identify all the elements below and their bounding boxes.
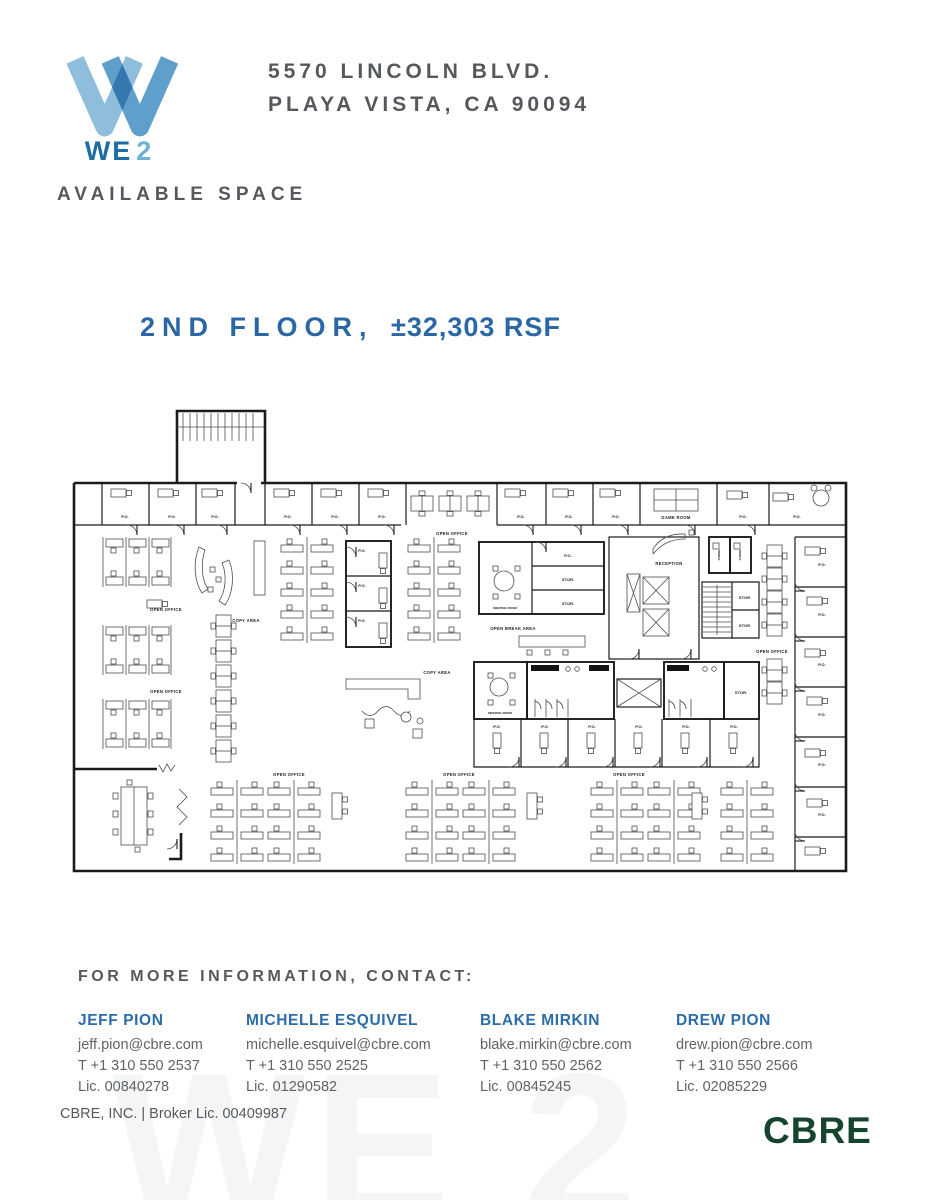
- room-label-po: P.O.: [358, 583, 366, 588]
- broker-phone: T +1 310 550 2566: [676, 1056, 812, 1077]
- we2-logo-w-icon: [58, 50, 180, 138]
- room-label-po: P.O.: [358, 618, 366, 623]
- broker-email[interactable]: michelle.esquivel@cbre.com: [246, 1035, 431, 1056]
- logo-two: 2: [136, 136, 153, 166]
- restrooms: MEETING ROOM STOR.: [474, 662, 759, 719]
- room-label-po: P.O.: [682, 724, 690, 729]
- room-label-po: P.O.: [331, 514, 339, 519]
- cbre-logo: CBRE: [763, 1110, 872, 1152]
- room-label-open-office: OPEN OFFICE: [150, 689, 182, 694]
- broker-phone: T +1 310 550 2537: [78, 1056, 203, 1077]
- floor-plan-svg: P.O. P.O. P.O. P.O. P.O. P.O. P.O. P.O. …: [69, 397, 861, 897]
- room-label-po: P.O.: [793, 514, 801, 519]
- broker-name: DREW PION: [676, 1012, 812, 1030]
- company-license-line: CBRE, INC. | Broker Lic. 00409987: [60, 1106, 287, 1122]
- room-label-open-office: OPEN OFFICE: [756, 649, 788, 654]
- mid-cubicles: P.O. P.O. P.O.: [281, 537, 460, 647]
- room-label-meeting-room: MEETING ROOM: [493, 606, 517, 610]
- room-label-po: P.O.: [818, 762, 826, 767]
- broker-name: JEFF PION: [78, 1012, 203, 1030]
- flyer-page: WE 2 WE2 5570 LINCOLN BLVD. PLAYA VISTA,…: [0, 0, 928, 1200]
- bottom-office-row: P.O. P.O. P.O. P.O. P.O. P.O.: [474, 719, 759, 767]
- room-label-phone: PHONE: [717, 550, 721, 561]
- room-label-po: P.O.: [818, 662, 826, 667]
- room-label-po: P.O.: [739, 514, 747, 519]
- logo-we: WE: [85, 136, 133, 166]
- broker-card-jeff-pion: JEFF PION jeff.pion@cbre.com T +1 310 55…: [78, 1012, 203, 1098]
- room-label-po: P.O.: [493, 724, 501, 729]
- contact-heading: FOR MORE INFORMATION, CONTACT:: [78, 968, 475, 986]
- room-label-open-office: OPEN OFFICE: [436, 531, 468, 536]
- room-label-po: P.O.: [612, 514, 620, 519]
- room-label-po: P.O.: [358, 548, 366, 553]
- room-label-game-room: GAME ROOM: [661, 515, 691, 520]
- room-label-meeting-room: MEETING ROOM: [488, 711, 512, 715]
- we2-logo-text: WE2: [58, 136, 180, 167]
- broker-email[interactable]: jeff.pion@cbre.com: [78, 1035, 203, 1056]
- room-label-po: P.O.: [818, 712, 826, 717]
- center-copy-area: COPY AREA: [346, 670, 451, 738]
- room-label-po: P.O.: [211, 514, 219, 519]
- broker-card-michelle-esquivel: MICHELLE ESQUIVEL michelle.esquivel@cbre…: [246, 1012, 431, 1098]
- broker-email[interactable]: blake.mirkin@cbre.com: [480, 1035, 632, 1056]
- room-label-stor: STOR.: [562, 601, 574, 606]
- room-label-po: P.O.: [730, 724, 738, 729]
- room-label-po: P.O.: [565, 514, 573, 519]
- room-label-stor: STOR.: [735, 690, 747, 695]
- floor-name: 2ND FLOOR,: [140, 312, 374, 342]
- broker-email[interactable]: drew.pion@cbre.com: [676, 1035, 812, 1056]
- floor-title: 2ND FLOOR, ±32,303 RSF: [140, 312, 561, 343]
- room-label-copy-area: COPY AREA: [232, 618, 259, 623]
- broker-phone: T +1 310 550 2525: [246, 1056, 431, 1077]
- top-office-row: P.O. P.O. P.O. P.O. P.O. P.O. P.O. P.O. …: [74, 483, 846, 536]
- room-label-reception: RECEPTION: [655, 561, 682, 566]
- broker-phone: T +1 310 550 2562: [480, 1056, 632, 1077]
- broker-license: Lic. 00840278: [78, 1077, 203, 1098]
- broker-name: MICHELLE ESQUIVEL: [246, 1012, 431, 1030]
- room-label-stor: STOR.: [739, 623, 751, 628]
- room-label-po: P.O.: [121, 514, 129, 519]
- broker-license: Lic. 00845245: [480, 1077, 632, 1098]
- room-label-open-office: OPEN OFFICE: [443, 772, 475, 777]
- bottom-open-office: OPEN OFFICE OPEN OFFICE OPEN OFFICE: [211, 772, 773, 864]
- room-label-open-office: OPEN OFFICE: [150, 607, 182, 612]
- room-label-open-break-area: OPEN BREAK AREA: [490, 626, 535, 631]
- broker-card-drew-pion: DREW PION drew.pion@cbre.com T +1 310 55…: [676, 1012, 812, 1098]
- room-label-po: P.O.: [541, 724, 549, 729]
- room-label-po: P.O.: [818, 562, 826, 567]
- room-label-stor: STOR.: [739, 595, 751, 600]
- phone-stairs-storage: PHONE PHONE STOR. STOR.: [702, 537, 759, 638]
- broker-license: Lic. 01290582: [246, 1077, 431, 1098]
- right-office-column: OPEN OFFICE P.O. P.O. P.O. P.O. P.O. P.O…: [756, 537, 846, 871]
- broker-license: Lic. 02085229: [676, 1077, 812, 1098]
- room-label-po: P.O.: [168, 514, 176, 519]
- room-label-copy-area: COPY AREA: [423, 670, 450, 675]
- conference-area: [74, 764, 187, 859]
- room-label-open-office: OPEN OFFICE: [273, 772, 305, 777]
- property-address: 5570 LINCOLN BLVD. PLAYA VISTA, CA 90094: [268, 56, 590, 121]
- room-label-po: P.O.: [818, 612, 826, 617]
- floor-rsf: ±32,303 RSF: [391, 312, 561, 342]
- room-label-po: P.O.: [635, 724, 643, 729]
- room-label-po: P.O.: [588, 724, 596, 729]
- room-label-po: P.O.: [378, 514, 386, 519]
- core-rooms: MEETING ROOM P.O. STOR. STOR. OPEN BREAK…: [479, 542, 604, 655]
- room-label-po: P.O.: [818, 812, 826, 817]
- elevator-lobby: RECEPTION: [609, 530, 699, 659]
- room-label-open-office: OPEN OFFICE: [613, 772, 645, 777]
- broker-card-blake-mirkin: BLAKE MIRKIN blake.mirkin@cbre.com T +1 …: [480, 1012, 632, 1098]
- left-open-office: OPEN OFFICE OPEN OFFICE COPY AREA: [103, 537, 265, 762]
- stairwell: [177, 411, 265, 493]
- address-line-2: PLAYA VISTA, CA 90094: [268, 89, 590, 122]
- available-space-label: AVAILABLE SPACE: [57, 184, 307, 206]
- room-label-po: P.O.: [284, 514, 292, 519]
- address-line-1: 5570 LINCOLN BLVD.: [268, 56, 590, 89]
- room-label-stor: STOR.: [562, 577, 574, 582]
- room-label-po: P.O.: [564, 553, 572, 558]
- room-label-phone: PHONE: [738, 550, 742, 561]
- broker-name: BLAKE MIRKIN: [480, 1012, 632, 1030]
- room-label-po: P.O.: [517, 514, 525, 519]
